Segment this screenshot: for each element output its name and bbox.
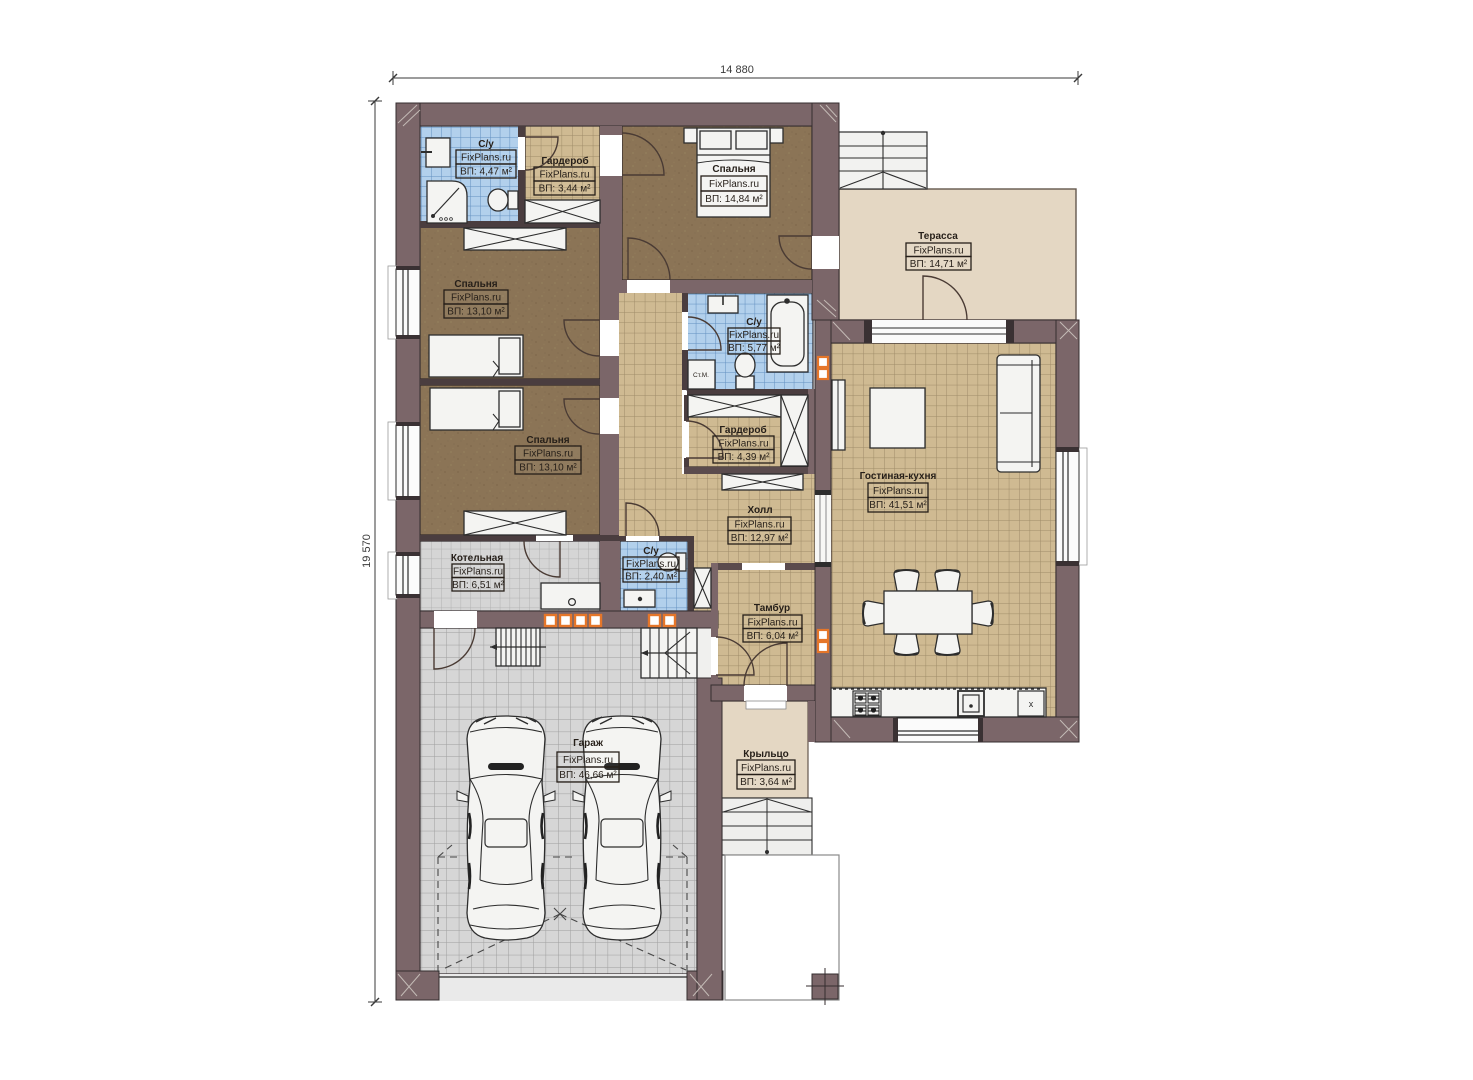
svg-text:FixPlans.ru: FixPlans.ru	[626, 559, 676, 570]
svg-text:FixPlans.ru: FixPlans.ru	[453, 567, 503, 578]
svg-text:ВП: 5,77 м²: ВП: 5,77 м²	[728, 343, 781, 354]
svg-text:FixPlans.ru: FixPlans.ru	[709, 179, 759, 190]
svg-text:Гардероб: Гардероб	[719, 424, 766, 436]
svg-text:FixPlans.ru: FixPlans.ru	[913, 246, 963, 257]
svg-text:14 880: 14 880	[720, 64, 754, 76]
svg-text:ВП: 13,10 м²: ВП: 13,10 м²	[447, 307, 505, 318]
svg-text:ВП: 14,71 м²: ВП: 14,71 м²	[910, 259, 968, 270]
svg-text:Тамбур: Тамбур	[754, 602, 790, 614]
svg-text:FixPlans.ru: FixPlans.ru	[451, 293, 501, 304]
svg-text:Ст.М.: Ст.М.	[693, 372, 709, 379]
svg-text:Гардероб: Гардероб	[541, 155, 588, 167]
svg-text:С/у: С/у	[643, 546, 659, 557]
svg-text:Котельная: Котельная	[451, 553, 504, 564]
svg-text:Терасса: Терасса	[918, 231, 958, 242]
svg-text:ВП: 6,51 м²: ВП: 6,51 м²	[452, 580, 505, 591]
svg-text:ВП: 4,47 м²: ВП: 4,47 м²	[460, 167, 513, 178]
svg-text:ВП: 14,84 м²: ВП: 14,84 м²	[705, 194, 763, 205]
svg-text:Спальня: Спальня	[454, 279, 497, 290]
svg-text:Гараж: Гараж	[573, 738, 604, 749]
svg-text:Спальня: Спальня	[526, 435, 569, 446]
svg-text:19 570: 19 570	[361, 534, 373, 568]
svg-text:Спальня: Спальня	[712, 164, 755, 175]
svg-text:ВП: 13,10 м²: ВП: 13,10 м²	[519, 463, 577, 474]
svg-text:С/у: С/у	[746, 317, 762, 328]
svg-text:x: x	[1029, 699, 1034, 709]
svg-text:FixPlans.ru: FixPlans.ru	[461, 153, 511, 164]
svg-text:ВП: 3,64 м²: ВП: 3,64 м²	[740, 777, 793, 788]
svg-text:ВП: 46,66 м²: ВП: 46,66 м²	[559, 770, 617, 781]
svg-text:FixPlans.ru: FixPlans.ru	[718, 439, 768, 450]
svg-text:ВП: 6,04 м²: ВП: 6,04 м²	[747, 631, 800, 642]
svg-text:С/у: С/у	[478, 139, 494, 150]
svg-text:FixPlans.ru: FixPlans.ru	[741, 763, 791, 774]
svg-text:FixPlans.ru: FixPlans.ru	[734, 520, 784, 531]
svg-text:ВП: 2,40 м²: ВП: 2,40 м²	[625, 572, 678, 583]
svg-text:FixPlans.ru: FixPlans.ru	[873, 486, 923, 497]
svg-text:ВП: 3,44 м²: ВП: 3,44 м²	[539, 184, 592, 195]
svg-text:ВП: 12,97 м²: ВП: 12,97 м²	[731, 533, 789, 544]
svg-text:FixPlans.ru: FixPlans.ru	[729, 330, 779, 341]
svg-text:FixPlans.ru: FixPlans.ru	[523, 449, 573, 460]
svg-text:Гостиная-кухня: Гостиная-кухня	[860, 471, 937, 482]
svg-text:Холл: Холл	[747, 505, 772, 516]
svg-text:FixPlans.ru: FixPlans.ru	[539, 170, 589, 181]
svg-text:FixPlans.ru: FixPlans.ru	[747, 618, 797, 629]
svg-text:ВП: 41,51 м²: ВП: 41,51 м²	[869, 500, 927, 511]
svg-text:ВП: 4,39 м²: ВП: 4,39 м²	[718, 452, 771, 463]
svg-text:Крыльцо: Крыльцо	[743, 749, 789, 760]
svg-text:FixPlans.ru: FixPlans.ru	[563, 755, 613, 766]
